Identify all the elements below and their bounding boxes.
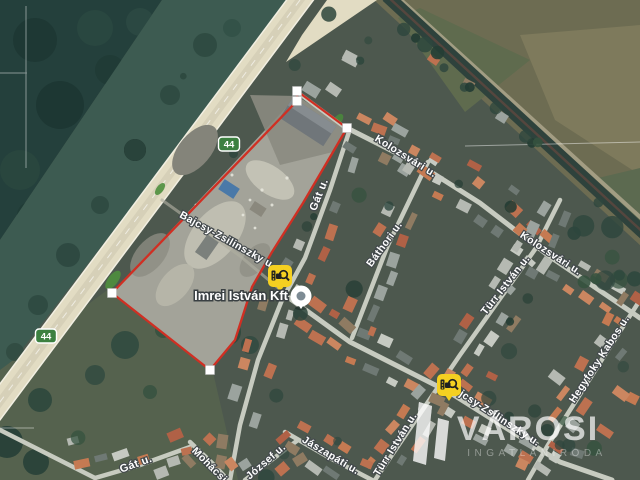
route-44-shield: 44	[36, 329, 57, 343]
route-44-shield: 44	[219, 137, 240, 151]
watermark-brand: VÁROSI	[457, 410, 599, 448]
route-44-label: 44	[41, 332, 52, 343]
watermark-tagline: INGATLANIRODA	[467, 448, 606, 459]
route-44-label: 44	[224, 140, 235, 151]
business-name-label[interactable]: Imrei István Kft	[194, 288, 289, 303]
map-canvas[interactable]: 44 44 Bajcsy-Zsilinszky u. Gát u. Kolozs…	[0, 0, 640, 480]
